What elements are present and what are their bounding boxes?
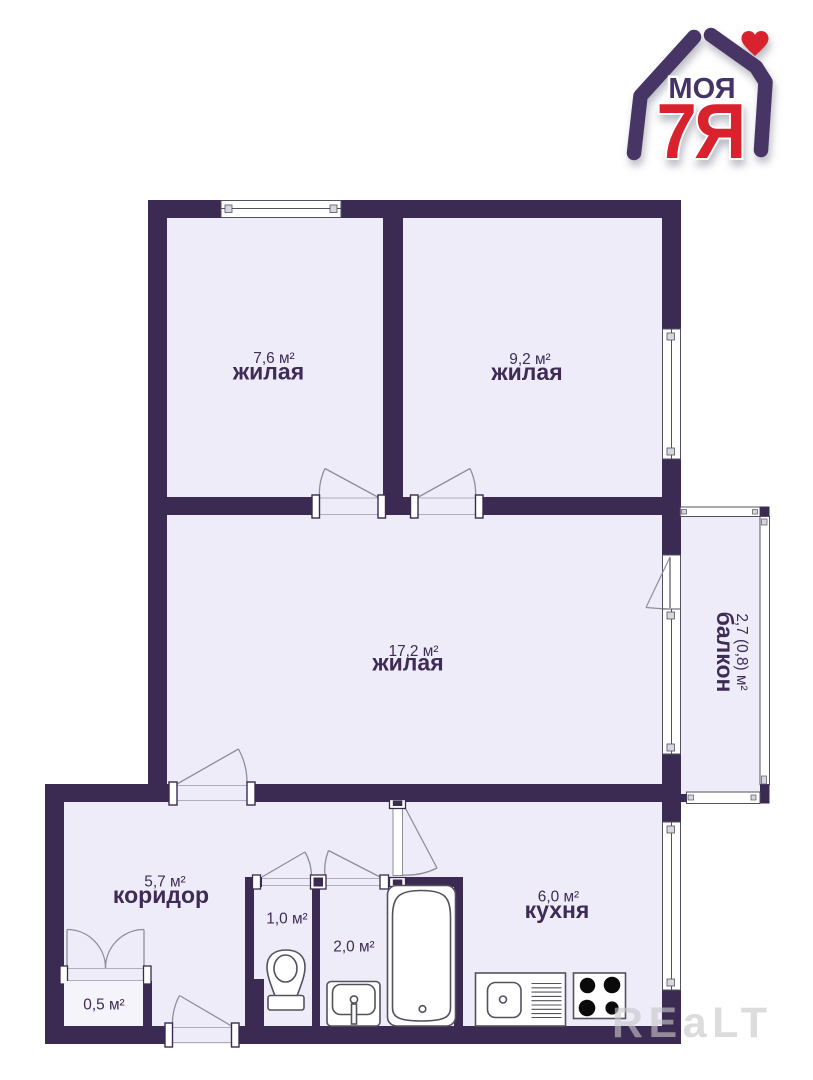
- svg-text:жилая: жилая: [232, 359, 304, 385]
- svg-text:2,0 м²: 2,0 м²: [333, 939, 374, 956]
- svg-text:жилая: жилая: [371, 650, 443, 676]
- svg-text:1,0 м²: 1,0 м²: [266, 911, 307, 928]
- svg-text:балкон: балкон: [712, 612, 738, 693]
- svg-text:0,5 м²: 0,5 м²: [83, 997, 124, 1014]
- svg-text:REaLT: REaLT: [612, 999, 773, 1047]
- svg-text:кухня: кухня: [525, 897, 590, 923]
- svg-text:жилая: жилая: [490, 359, 562, 385]
- svg-text:7Я: 7Я: [657, 88, 744, 175]
- svg-text:коридор: коридор: [113, 882, 209, 908]
